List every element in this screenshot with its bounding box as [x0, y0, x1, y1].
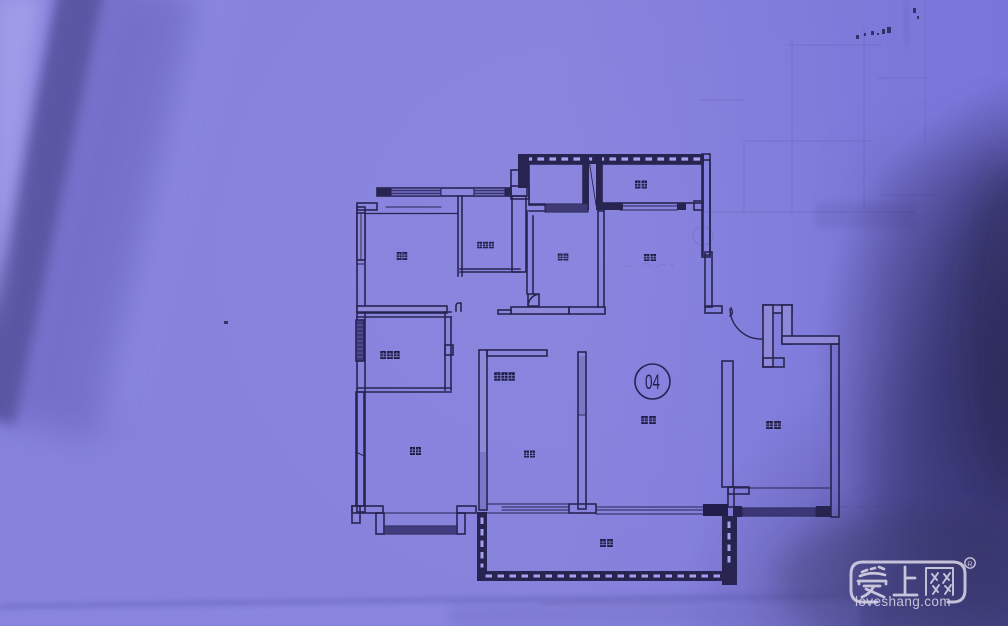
svg-text:R: R — [967, 560, 973, 569]
svg-text:loveshang.com: loveshang.com — [855, 594, 951, 609]
svg-text:04: 04 — [645, 371, 660, 394]
